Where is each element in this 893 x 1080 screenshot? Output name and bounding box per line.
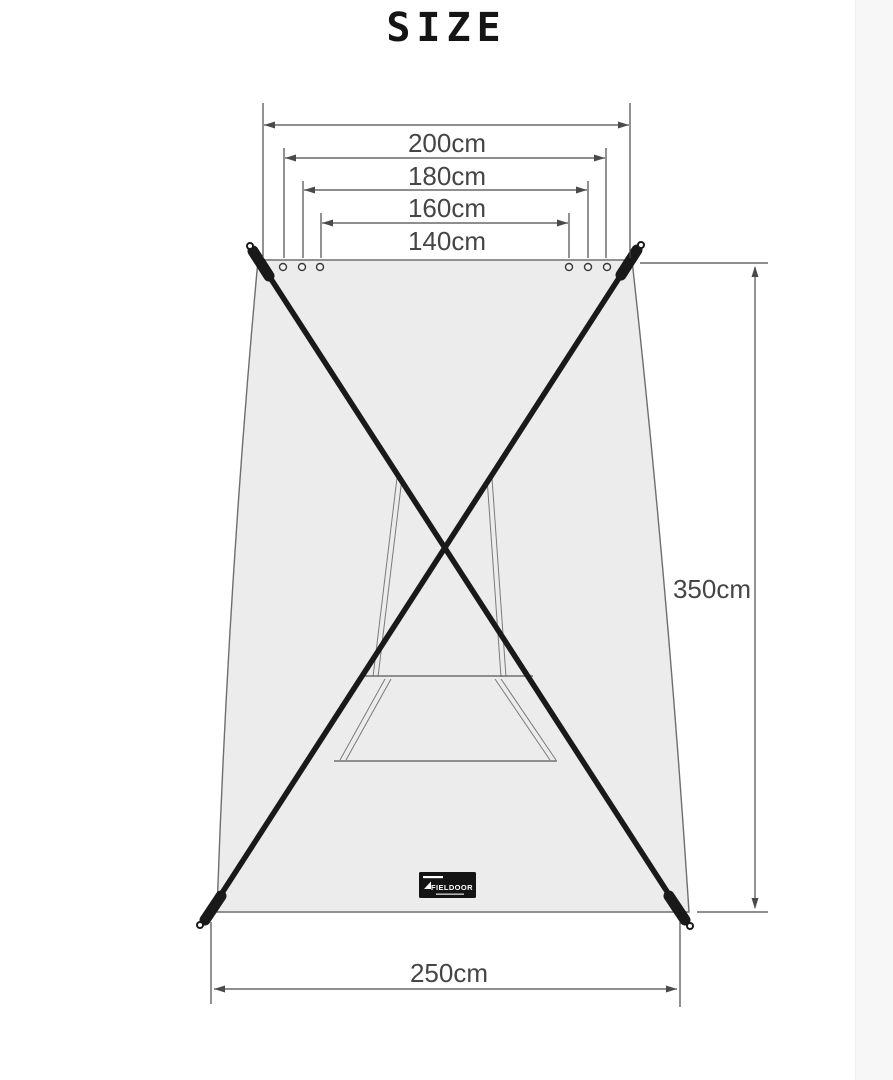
dimension-label: 250cm	[410, 958, 488, 988]
grommet-icon	[604, 264, 611, 271]
page-edge-strip	[855, 0, 893, 1080]
arrowhead-icon	[285, 155, 296, 162]
pole-eyelet-icon	[687, 923, 693, 929]
grommet-icon	[299, 264, 306, 271]
pole-eyelet-icon	[638, 242, 644, 248]
dimension-label: 180cm	[408, 161, 486, 191]
arrowhead-icon	[618, 122, 629, 129]
logo-flag-icon	[423, 876, 443, 878]
grommet-icon	[585, 264, 592, 271]
pole-tip-icon	[205, 896, 221, 920]
pole-tip-icon	[621, 250, 637, 275]
grommet-icon	[566, 264, 573, 271]
dimension-label: 140cm	[408, 226, 486, 256]
arrowhead-icon	[304, 187, 315, 194]
arrowhead-icon	[214, 986, 225, 993]
pole-eyelet-icon	[197, 922, 203, 928]
arrowhead-icon	[666, 986, 677, 993]
arrowhead-icon	[576, 187, 587, 194]
grommet-icon	[317, 264, 324, 271]
brand-label: FIELDOOR	[419, 872, 476, 898]
size-diagram-page: SIZE	[0, 0, 893, 1080]
size-diagram: 200cm 180cm 160cm 140cm	[0, 0, 893, 1080]
arrowhead-icon	[752, 266, 759, 277]
brand-tagline-bar	[436, 894, 464, 895]
grommet-icon	[280, 264, 287, 271]
arrowhead-icon	[264, 122, 275, 129]
arrowhead-icon	[752, 898, 759, 909]
dimension-label: 200cm	[408, 128, 486, 158]
pole-tip-icon	[253, 251, 269, 276]
arrowhead-icon	[557, 220, 568, 227]
pole-eyelet-icon	[247, 243, 253, 249]
arrowhead-icon	[322, 220, 333, 227]
brand-name: FIELDOOR	[431, 883, 473, 892]
dimension-label: 160cm	[408, 193, 486, 223]
dimension-label: 350cm	[673, 574, 751, 604]
arrowhead-icon	[594, 155, 605, 162]
dimension-bottom-250cm: 250cm	[211, 922, 680, 1007]
